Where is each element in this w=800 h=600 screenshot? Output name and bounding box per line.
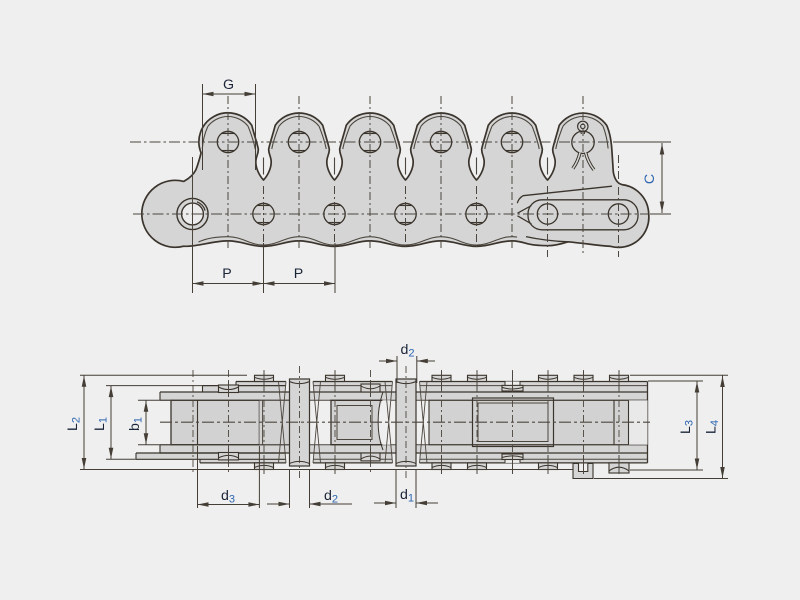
svg-text:P: P [222, 266, 231, 282]
svg-text:C: C [642, 174, 658, 184]
svg-text:G: G [223, 77, 234, 93]
svg-text:P: P [294, 266, 303, 282]
